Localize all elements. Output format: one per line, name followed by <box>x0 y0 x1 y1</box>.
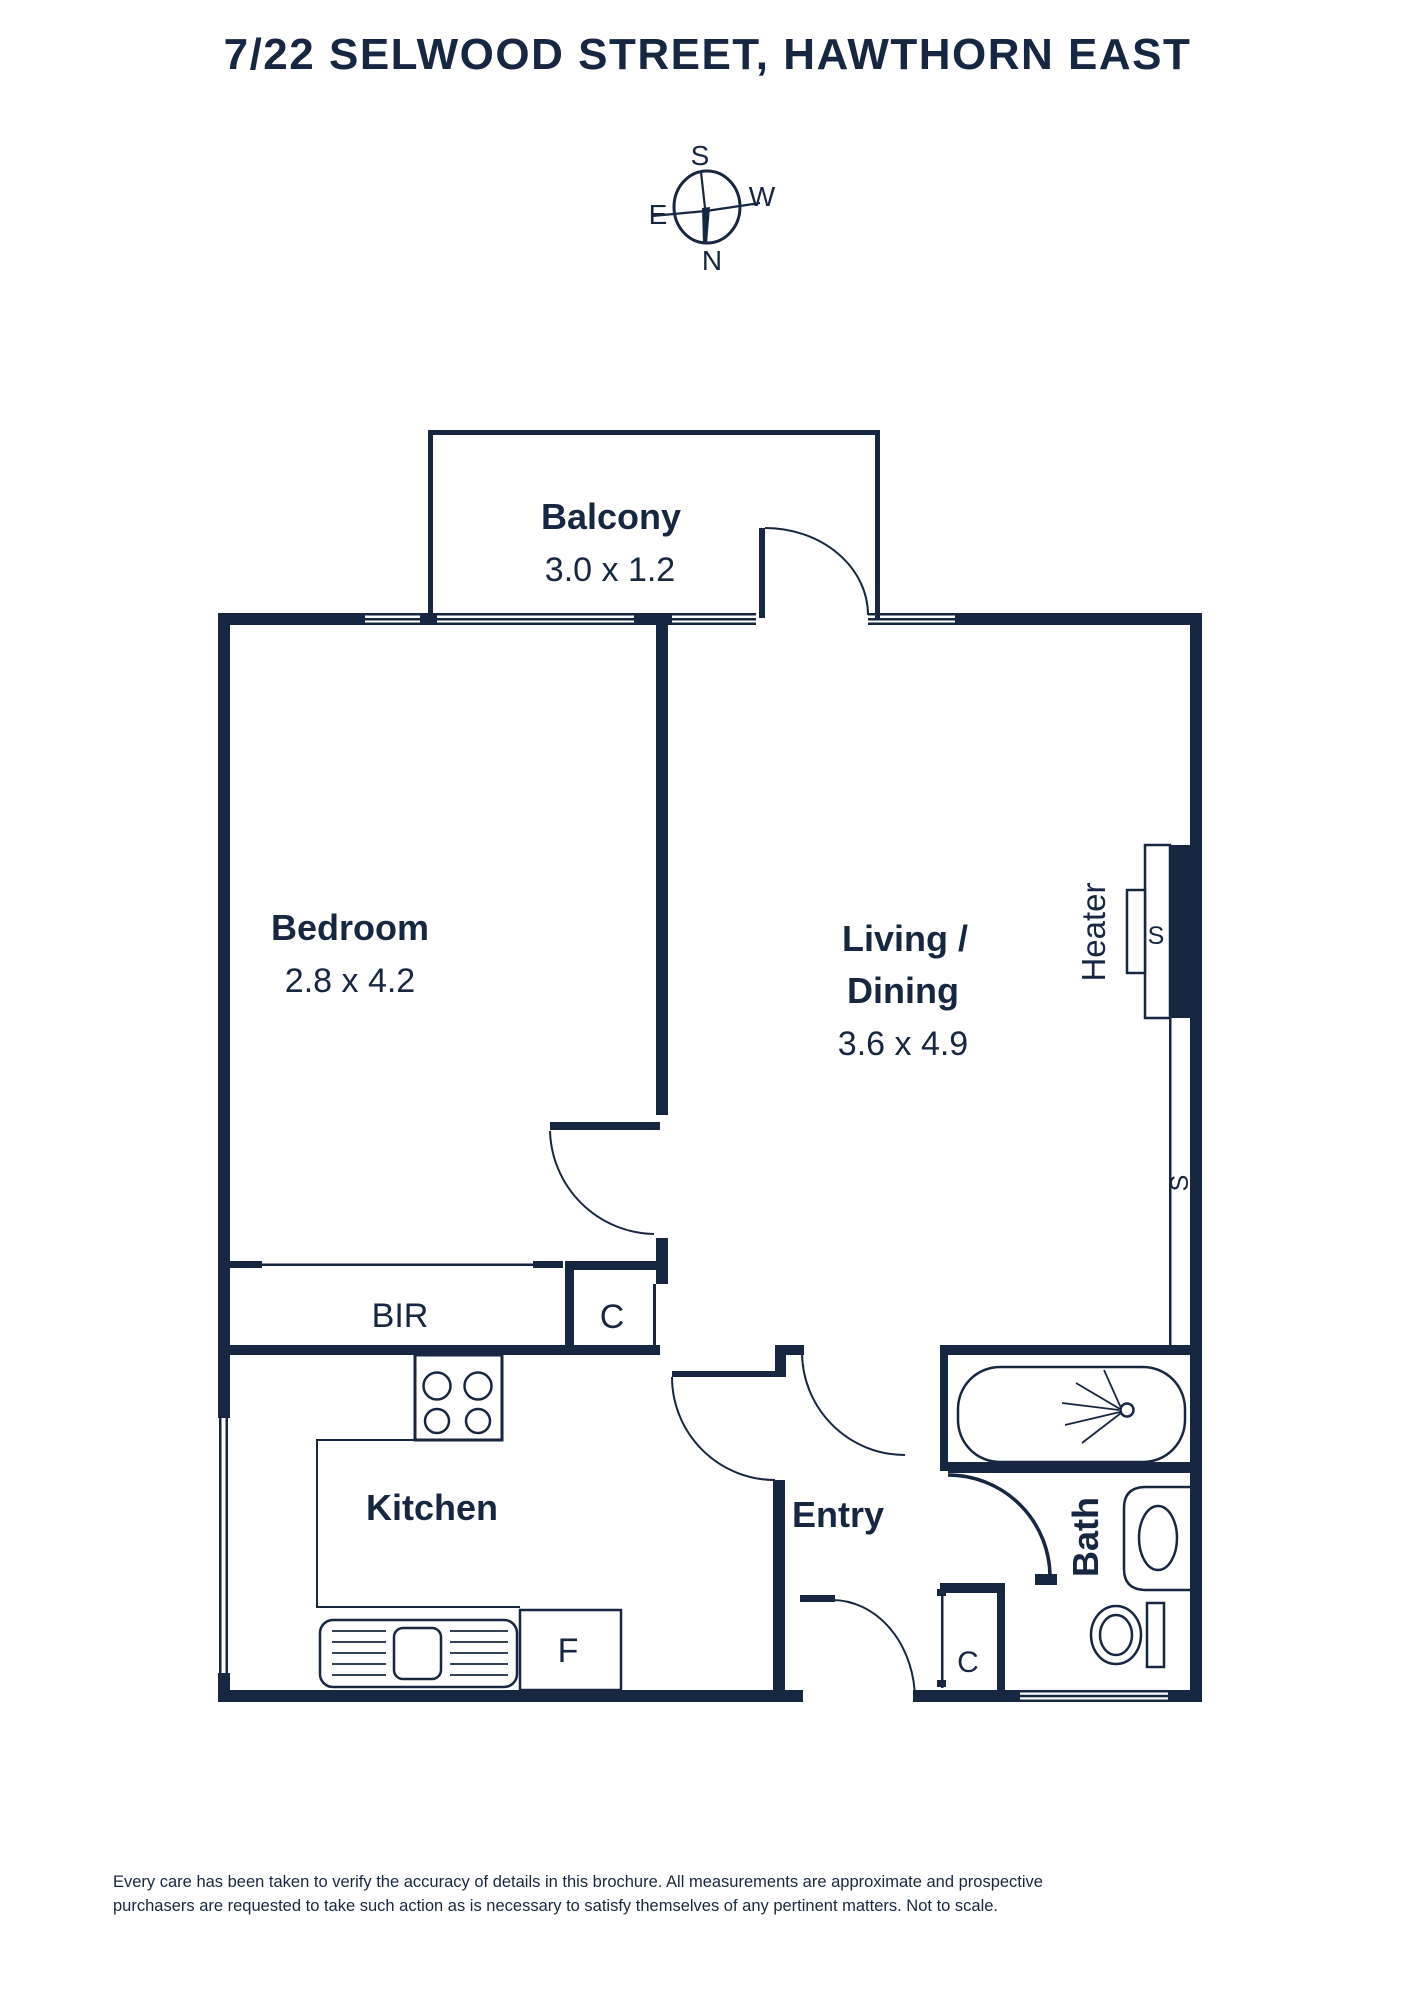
compass-label-s: S <box>691 140 710 171</box>
vanity-basin-icon <box>1124 1487 1190 1590</box>
window-left-kitchen <box>219 1418 228 1673</box>
bir-robe-walls <box>228 1261 563 1268</box>
window-top-living-right <box>868 613 955 625</box>
kitchen-door-leaf <box>672 1371 775 1377</box>
hall-door-arc <box>802 1352 905 1455</box>
bedroom-door-arc <box>550 1131 654 1234</box>
heater-label: Heater <box>1075 882 1112 981</box>
compass-label-w: W <box>749 181 776 212</box>
window-top-under-balcony <box>437 613 634 625</box>
compass-icon: S W E N <box>649 140 776 276</box>
outer-walls <box>218 613 1202 1702</box>
disclaimer-text: Every care has been taken to verify the … <box>113 1870 1333 1918</box>
floorplan-canvas: S W E N <box>0 0 1415 2000</box>
shower-head-icon <box>1121 1404 1134 1417</box>
window-top-bedroom-left <box>365 613 420 625</box>
compass-label-e: E <box>649 199 668 230</box>
bedroom-label: Bedroom <box>271 907 429 948</box>
bedroom-living-divider-wall <box>550 625 668 1345</box>
bedroom-dims: 2.8 x 4.2 <box>285 962 415 1000</box>
bathtub-icon <box>958 1367 1185 1462</box>
hall-closet-label: C <box>600 1298 625 1336</box>
sink-icon <box>320 1620 517 1687</box>
entry-closet-label: C <box>957 1646 979 1679</box>
balcony-dims: 3.0 x 1.2 <box>545 551 675 589</box>
stove-icon <box>415 1355 502 1440</box>
compass-label-n: N <box>702 245 722 276</box>
heater-s-label: S <box>1148 922 1165 950</box>
bath-label: Bath <box>1065 1497 1106 1577</box>
kitchen-door-arc <box>672 1377 775 1480</box>
fridge-label: F <box>558 1632 579 1670</box>
floorplan-page: 7/22 SELWOOD STREET, HAWTHORN EAST S W E… <box>0 0 1415 2000</box>
window-top-living-left <box>672 613 756 625</box>
entry-door-leaf <box>800 1595 835 1602</box>
bir-label: BIR <box>372 1297 429 1335</box>
living-label-line1: Living / <box>842 918 968 959</box>
living-dims: 3.6 x 4.9 <box>838 1025 968 1063</box>
toilet-icon <box>1091 1603 1164 1667</box>
balcony-door-arc <box>765 528 868 615</box>
wall-s-label: S <box>1166 1175 1194 1192</box>
bedroom-door-leaf <box>550 1122 660 1130</box>
entry-door-arc <box>832 1600 915 1700</box>
balcony-door-leaf <box>759 528 765 618</box>
compass-north-pointer <box>702 207 710 244</box>
kitchen-label: Kitchen <box>366 1487 498 1528</box>
bath-door-jamb <box>1035 1574 1057 1585</box>
bath-door-arc <box>948 1475 1050 1577</box>
disclaimer-line1: Every care has been taken to verify the … <box>113 1870 1333 1894</box>
disclaimer-line2: purchasers are requested to take such ac… <box>113 1894 1333 1918</box>
living-label-line2: Dining <box>847 970 959 1011</box>
balcony-label: Balcony <box>541 496 681 537</box>
entry-label: Entry <box>792 1494 884 1535</box>
window-bottom-bath <box>1020 1690 1168 1702</box>
